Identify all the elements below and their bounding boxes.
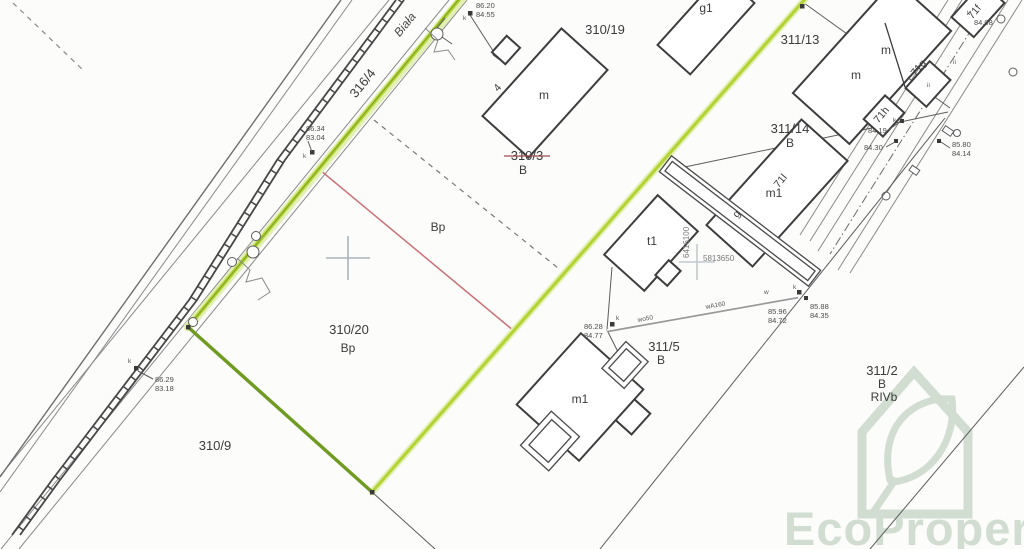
road-edge-line: [19, 0, 467, 549]
elevation-label: 86.29: [155, 375, 174, 384]
elevation-label: 84.72: [768, 316, 787, 325]
label-leader: [886, 142, 895, 147]
parcel-label-311-13: 311/13: [781, 32, 820, 47]
building-label-g1: g1: [699, 1, 713, 15]
selected-parcel-boundary: [188, 0, 806, 492]
building-number-4: 4: [491, 82, 504, 94]
parcel-label-310-20: 310/20: [329, 322, 369, 337]
elevation-label: 85.88: [810, 302, 829, 311]
elevation-label: 84.55: [476, 10, 495, 19]
survey-letter-k: k: [463, 15, 467, 22]
road-embankment-hatching: [16, 0, 400, 535]
parcel-label-311-2: 311/2: [866, 363, 898, 378]
survey-point: [310, 150, 315, 155]
manhole-symbol: [954, 130, 961, 137]
parcel-label-311-5: 311/5: [648, 339, 680, 354]
building-m4-annex: [492, 36, 520, 64]
elevation-label: 85.96: [768, 307, 787, 316]
manhole-symbol: [997, 15, 1005, 23]
manhole-symbol: [1009, 68, 1017, 76]
survey-point: [468, 11, 473, 16]
elevation-label: 86.34: [306, 124, 325, 133]
survey-point: [800, 4, 805, 9]
red-division-line: [320, 170, 514, 331]
building-label-m1: m1: [766, 186, 783, 200]
building-label-m: m: [851, 68, 861, 82]
road-far-edge-line: [0, 0, 341, 477]
parcel-label-310-9: 310/9: [199, 438, 232, 453]
tree-symbol: [247, 246, 259, 258]
survey-point: [610, 322, 615, 327]
landuse-label-b: B: [786, 136, 794, 150]
parcel-label-310-19: 310/19: [585, 22, 625, 37]
elevation-label: 84.35: [810, 311, 829, 320]
watermark-leaf-icon: [888, 399, 953, 482]
survey-point: [134, 366, 139, 371]
building-label-m: m: [881, 43, 891, 57]
boundary-line: [372, 492, 435, 549]
survey-letter-k: k: [616, 315, 620, 322]
survey-letter-w: w: [763, 289, 769, 296]
survey-letter-k: k: [793, 284, 797, 291]
landuse-label-b: B: [878, 377, 886, 391]
landuse-label-b: B: [519, 163, 527, 177]
building-label-t1: t1: [647, 234, 657, 248]
survey-point: [186, 325, 191, 330]
boundary-point-symbol: [228, 258, 237, 267]
utility-box-symbol: [942, 126, 954, 137]
elevation-label: 83.18: [155, 384, 174, 393]
cadastral-map: EcoProperty: [0, 0, 1024, 549]
grid-easting-label: 6416100: [682, 226, 691, 258]
road-edge-line: [0, 0, 389, 476]
survey-point: [900, 119, 904, 123]
building-label-m: m: [539, 88, 549, 102]
ecoproperty-watermark: EcoProperty: [784, 372, 1024, 549]
landuse-label-bp-upper: Bp: [431, 220, 446, 234]
survey-point: [797, 290, 802, 295]
boundary-point-symbol: [252, 232, 261, 241]
survey-letter-ii: ii: [927, 82, 930, 89]
survey-point: [804, 296, 808, 300]
road-far-edge-line: [0, 0, 352, 492]
landuse-label-b: B: [657, 353, 665, 367]
elevation-label: 86.28: [584, 322, 603, 331]
parcel-label-311-14: 311/14: [771, 121, 810, 136]
building-label-m1: m1: [572, 392, 589, 406]
street-name-label: Biała: [391, 9, 419, 39]
dashed-corner-line: [13, 3, 83, 70]
survey-point: [370, 490, 375, 495]
elevation-label: 85.80: [952, 140, 971, 149]
soil-class-label: RIVb: [871, 390, 898, 404]
survey-letter-ii: ii: [953, 59, 956, 66]
utility-box-symbol: [909, 165, 920, 175]
landuse-label-bp: Bp: [341, 341, 356, 355]
elevation-label: 86.20: [476, 1, 495, 10]
map-canvas: EcoProperty: [0, 0, 1024, 549]
elevation-label: 84.08: [974, 18, 993, 27]
grid-cross: [326, 236, 370, 280]
survey-point: [937, 139, 941, 143]
utility-service-line: [607, 267, 618, 352]
road-edge-line: [1, 0, 449, 549]
tree-symbol: [431, 28, 443, 40]
elevation-label: 84.14: [952, 149, 971, 158]
survey-letter-k: k: [303, 153, 307, 160]
elevation-label: 84.19: [868, 126, 887, 135]
survey-letter-k: k: [128, 358, 132, 365]
grid-northing-label: 5813650: [703, 254, 735, 263]
elevation-label: 84.30: [864, 143, 883, 152]
elevation-label: 84.77: [584, 331, 603, 340]
elevation-label: 83.04: [306, 133, 325, 142]
tree-branch: [442, 37, 452, 44]
label-leader: [941, 142, 950, 148]
